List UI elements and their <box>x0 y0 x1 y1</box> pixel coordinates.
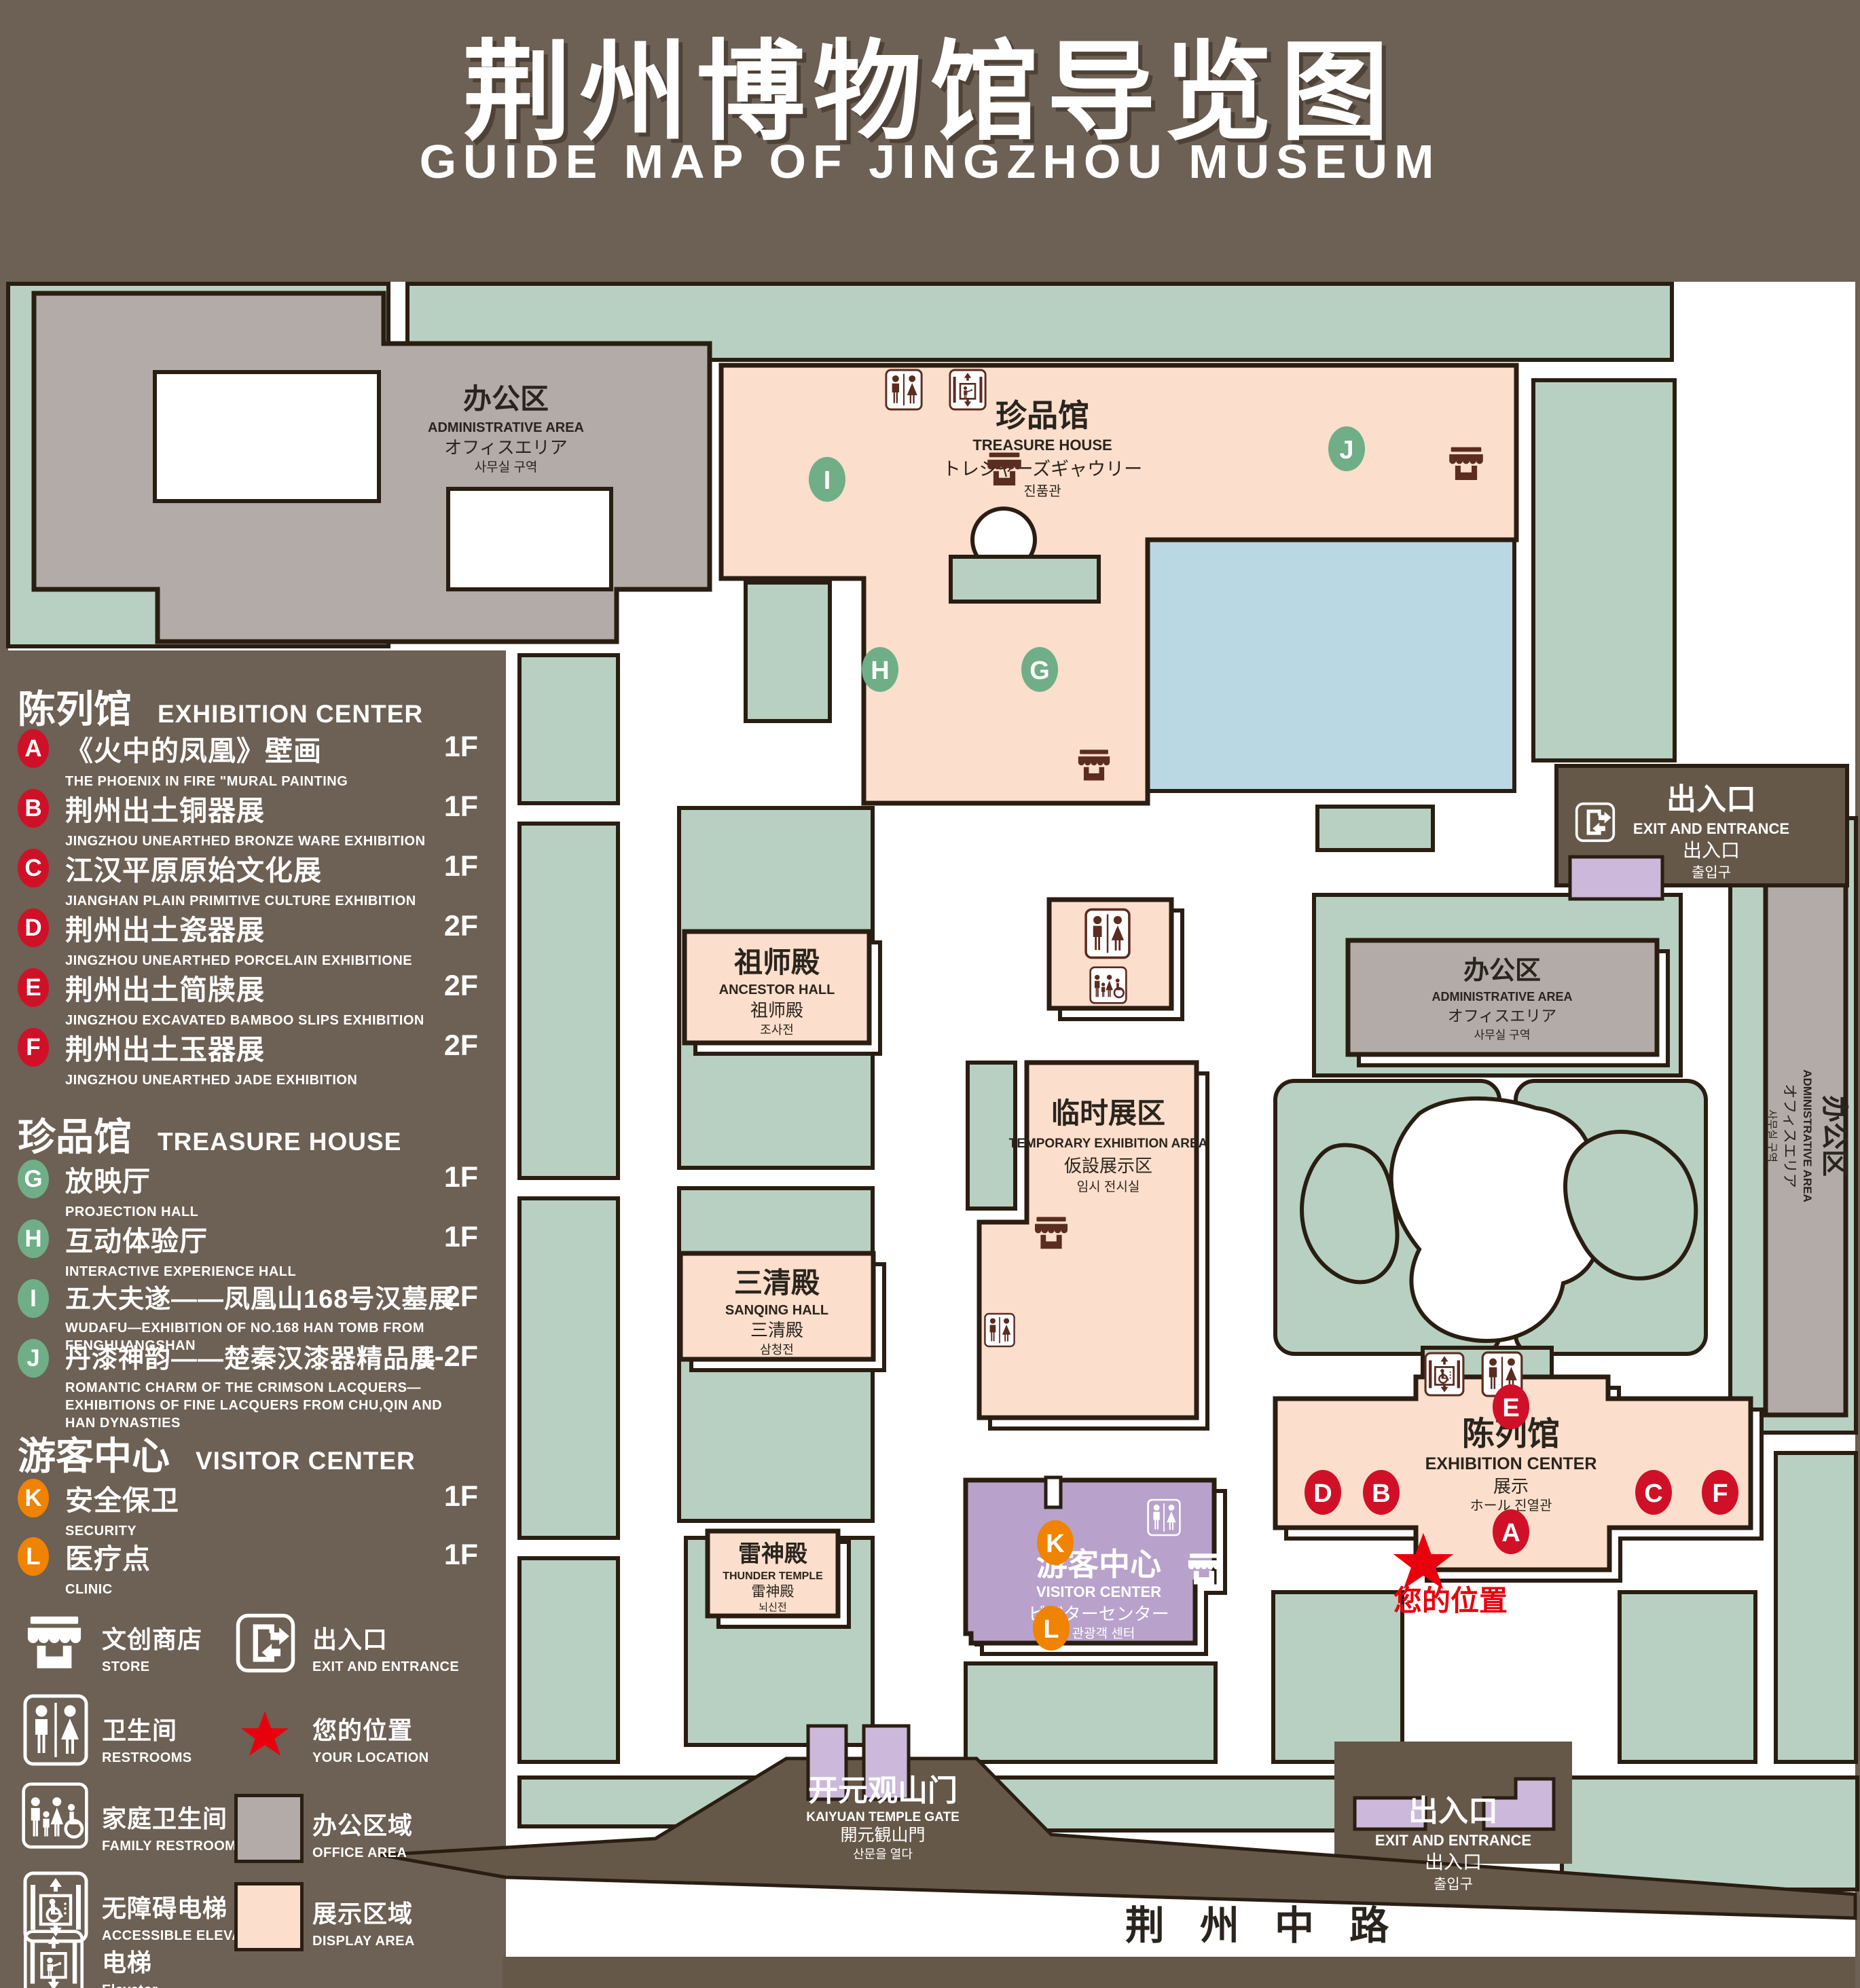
item-floor: 2F <box>444 1029 478 1063</box>
symbol-en: OFFICE AREA <box>312 1845 413 1861</box>
exit-s-en: EXIT AND ENTRANCE <box>1375 1832 1531 1849</box>
admin-nw-label-ko: 사무실 구역 <box>475 460 538 475</box>
item-zh: 五大夫遂——凤凰山168号汉墓展 <box>65 1278 493 1315</box>
item-floor: 2F <box>444 970 478 1003</box>
section-title-en: EXHIBITION CENTER <box>158 700 423 729</box>
exit-icon <box>234 1612 297 1674</box>
item-zh: 放映厅 <box>65 1158 493 1199</box>
admin-nw-label-ja: オフィスエリア <box>444 437 567 458</box>
display-area-swatch <box>234 1882 304 1951</box>
legend-item-L: L 医疗点 CLINIC 1F <box>18 1536 493 1598</box>
lawn <box>1776 1453 1856 1762</box>
legend-item-K: K 安全保卫 SECURITY 1F <box>18 1477 493 1540</box>
badge-I: I <box>18 1279 49 1318</box>
temporary-label-zh: 临时展区 <box>1051 1097 1165 1129</box>
exit-door-icon <box>1577 804 1614 841</box>
thunder-label-zh: 雷神殿 <box>738 1541 807 1567</box>
exit-s-ko: 출입구 <box>1434 1877 1473 1892</box>
item-zh: 荆州出土铜器展 <box>65 788 493 828</box>
svg-text:J: J <box>1339 436 1353 464</box>
ancestor-label-zh: 祖师殿 <box>734 946 820 978</box>
svg-text:A: A <box>1501 1519 1520 1547</box>
admin-e-label-ko: 사무실 구역 <box>1474 1029 1531 1042</box>
lawn <box>519 1198 618 1538</box>
section-title-zh: 游客中心 <box>18 1426 170 1481</box>
section-title-zh: 陈列馆 <box>18 679 132 734</box>
item-floor: 1F <box>444 1221 478 1254</box>
item-floor: 1-2F <box>418 1340 478 1374</box>
badge-J: J <box>18 1339 49 1378</box>
elevator-icon <box>950 370 985 409</box>
svg-text:G: G <box>1029 657 1050 685</box>
guide-map-poster: 办公区 ADMINISTRATIVE AREA オフィスエリア 사무실 구역 珍… <box>0 0 1860 1988</box>
admin-se-label-zh: 办公区 <box>1819 1095 1849 1177</box>
item-floor: 2F <box>444 910 478 943</box>
marker-K: K <box>1037 1520 1074 1565</box>
legend-section-visitor-center: 游客中心 VISITOR CENTER <box>18 1426 416 1481</box>
gate-label-ja: 開元観山門 <box>840 1826 925 1845</box>
lawn <box>1533 380 1675 760</box>
badge-C: C <box>18 849 49 887</box>
symbol-label-store: 文创商店 STORE <box>102 1620 202 1675</box>
marker-I: I <box>809 457 845 502</box>
item-en: CLINIC <box>65 1581 473 1598</box>
restroom-icon <box>985 1314 1014 1346</box>
exit-s-ja: 出入口 <box>1425 1852 1482 1873</box>
sanqing-label-zh: 三清殿 <box>734 1267 820 1299</box>
family-restroom-icon <box>20 1780 90 1851</box>
legend-section-exhibition-center: 陈列馆 EXHIBITION CENTER <box>18 679 423 734</box>
legend-section-treasure-house: 珍品馆 TREASURE HOUSE <box>18 1107 401 1162</box>
symbol-en: FAMILY RESTROOMS <box>102 1839 246 1854</box>
symbol-zh: 文创商店 <box>102 1620 202 1655</box>
accessible-elevator-icon <box>1425 1353 1463 1395</box>
exit-ne-ja: 出入口 <box>1683 840 1740 861</box>
badge-K: K <box>18 1479 49 1517</box>
exhibition-label-zh2: 展示 <box>1493 1476 1529 1496</box>
admin-e-label-zh: 办公区 <box>1463 957 1541 985</box>
symbol-en: Elevator <box>102 1983 158 1988</box>
exhibition-label-en: EXHIBITION CENTER <box>1425 1454 1597 1473</box>
restroom-icon <box>886 370 922 409</box>
badge-A: A <box>18 729 49 768</box>
treasure-label-en: TREASURE HOUSE <box>972 437 1112 454</box>
legend-item-F: F 荆州出土玉器展 JINGZHOU UNEARTHED JADE EXHIBI… <box>18 1027 493 1089</box>
your-location-label: 您的位置 <box>1393 1585 1508 1617</box>
exit-ne-en: EXIT AND ENTRANCE <box>1633 820 1789 837</box>
treasure-label-ja: トレジャーズギャウリー <box>943 459 1142 479</box>
pond-courtyard-lawn-top <box>951 557 1099 602</box>
family-restroom-icon <box>1091 968 1127 1004</box>
symbol-zh: 卫生间 <box>102 1711 192 1746</box>
admin-nw-courtyard <box>155 372 379 501</box>
item-zh: 荆州出土玉器展 <box>65 1027 493 1067</box>
lawn <box>746 583 830 721</box>
section-title-en: TREASURE HOUSE <box>158 1128 401 1156</box>
svg-text:D: D <box>1313 1479 1332 1508</box>
marker-L: L <box>1033 1606 1070 1651</box>
lawn <box>1317 807 1433 850</box>
symbol-en: DISPLAY AREA <box>312 1934 415 1949</box>
legend-item-H: H 互动体验厅 INTERACTIVE EXPERIENCE HALL 1F <box>18 1218 493 1281</box>
restroom-icon <box>22 1692 90 1768</box>
svg-text:H: H <box>871 657 889 685</box>
admin-nw-label-en: ADMINISTRATIVE AREA <box>428 420 584 435</box>
sanqing-label-ko: 삼청전 <box>760 1343 794 1357</box>
legend-item-D: D 荆州出土瓷器展 JINGZHOU UNEARTHED PORCELAIN E… <box>18 907 493 970</box>
legend-item-C: C 江汉平原原始文化展 JIANGHAN PLAIN PRIMITIVE CUL… <box>18 847 493 910</box>
admin-e-label-en: ADMINISTRATIVE AREA <box>1432 990 1573 1004</box>
item-zh: 医疗点 <box>65 1536 493 1577</box>
lawn <box>519 655 618 803</box>
marker-A: A <box>1493 1509 1529 1554</box>
badge-E: E <box>18 968 49 1007</box>
admin-se-label-ko: 사무실 구역 <box>1766 1109 1778 1162</box>
exit-ne-zh: 出入口 <box>1666 783 1756 816</box>
treasure-label-ko: 진품관 <box>1023 483 1061 499</box>
legend-item-A: A 《火中的凤凰》壁画 THE PHOENIX IN FIRE "MURAL P… <box>18 728 493 790</box>
symbol-zh: 出入口 <box>312 1620 459 1655</box>
badge-F: F <box>18 1028 49 1067</box>
symbol-label-your-location: 您的位置 YOUR LOCATION <box>312 1711 429 1766</box>
item-floor: 1F <box>444 731 478 764</box>
treasure-label-zh: 珍品馆 <box>996 398 1089 433</box>
svg-text:F: F <box>1712 1479 1728 1508</box>
symbol-label-office-area: 办公区域 OFFICE AREA <box>312 1806 413 1861</box>
legend-item-B: B 荆州出土铜器展 JINGZHOU UNEARTHED BRONZE WARE… <box>18 788 493 850</box>
symbol-zh: 家庭卫生间 <box>102 1799 246 1835</box>
temporary-label-ja: 仮設展示区 <box>1064 1156 1152 1176</box>
symbol-label-elevator: 电梯 Elevator <box>102 1943 158 1988</box>
visitor-notch <box>1046 1477 1061 1507</box>
item-en: JINGZHOU UNEARTHED JADE EXHIBITION <box>65 1071 473 1089</box>
symbol-en: STORE <box>102 1659 202 1675</box>
section-title-en: VISITOR CENTER <box>196 1447 416 1475</box>
item-zh: 江汉平原原始文化展 <box>65 847 493 888</box>
exit-ne-purple <box>1570 857 1662 899</box>
badge-G: G <box>18 1160 49 1198</box>
item-floor: 1F <box>444 1480 478 1513</box>
item-floor: 1F <box>444 1539 478 1572</box>
badge-H: H <box>18 1219 49 1258</box>
road-label: 荆 州 中 路 <box>1125 1904 1401 1948</box>
temporary-label-en: TEMPORARY EXHIBITION AREA <box>1009 1137 1208 1151</box>
item-en: ROMANTIC CHARM OF THE CRIMSON LACQUERS—E… <box>65 1379 473 1432</box>
lawn <box>519 1558 618 1762</box>
symbol-en: EXIT AND ENTRANCE <box>312 1659 459 1675</box>
admin-se-label-ja: オフィスエリア <box>1781 1084 1798 1188</box>
admin-e-label-ja: オフィスエリア <box>1448 1007 1557 1025</box>
temporary-label-ko: 임시 전시실 <box>1077 1179 1140 1194</box>
lawn <box>519 824 618 1178</box>
svg-text:C: C <box>1644 1479 1662 1508</box>
item-zh: 互动体验厅 <box>65 1218 493 1259</box>
visitor-label-en: VISITOR CENTER <box>1036 1583 1161 1600</box>
marker-E: E <box>1493 1384 1529 1429</box>
thunder-label-en: THUNDER TEMPLE <box>723 1570 823 1582</box>
symbol-label-restrooms: 卫生间 RESTROOMS <box>102 1711 192 1766</box>
exit-ne-ko: 출입구 <box>1692 865 1731 881</box>
section-title-zh: 珍品馆 <box>18 1107 132 1162</box>
ancestor-label-ko: 조사전 <box>760 1023 794 1037</box>
symbol-zh: 办公区域 <box>312 1806 413 1841</box>
marker-C: C <box>1635 1470 1672 1515</box>
badge-D: D <box>18 908 49 947</box>
svg-text:K: K <box>1046 1530 1065 1558</box>
elevator-icon <box>22 1928 86 1988</box>
svg-text:E: E <box>1502 1394 1519 1422</box>
ancestor-label-en: ANCESTOR HALL <box>719 982 835 997</box>
badge-B: B <box>18 789 49 828</box>
thunder-label-ko: 뇌신전 <box>759 1602 786 1613</box>
marker-B: B <box>1363 1470 1400 1515</box>
lawn <box>966 1663 1216 1762</box>
svg-text:B: B <box>1372 1479 1390 1508</box>
ancestor-label-ja: 祖师殿 <box>750 1000 803 1020</box>
symbol-label-family-restrooms: 家庭卫生间 FAMILY RESTROOMS <box>102 1799 246 1854</box>
symbol-zh: 您的位置 <box>312 1711 429 1746</box>
marker-H: H <box>862 647 898 692</box>
legend-item-E: E 荆州出土简牍展 JINGZHOU EXCAVATED BAMBOO SLIP… <box>18 967 493 1029</box>
admin-nw-label-zh: 办公区 <box>463 383 549 415</box>
marker-F: F <box>1702 1470 1738 1515</box>
lawn <box>968 1063 1015 1209</box>
item-zh: 《火中的凤凰》壁画 <box>65 728 493 769</box>
sanqing-label-en: SANQING HALL <box>725 1303 828 1318</box>
marker-D: D <box>1305 1470 1341 1515</box>
marker-G: G <box>1021 647 1058 692</box>
marker-J: J <box>1328 426 1365 471</box>
admin-se-label-en: ADMINISTRATIVE AREA <box>1801 1069 1814 1202</box>
svg-text:L: L <box>1043 1615 1059 1644</box>
gate-label-en: KAIYUAN TEMPLE GATE <box>806 1810 960 1824</box>
legend-item-J: J 丹漆神韵——楚秦汉漆器精品展 ROMANTIC CHARM OF THE C… <box>18 1338 493 1432</box>
item-zh: 荆州出土瓷器展 <box>65 907 493 948</box>
exit-s-zh: 出入口 <box>1408 1794 1498 1828</box>
symbol-en: RESTROOMS <box>102 1750 192 1766</box>
gate-label-ko: 산문을 열다 <box>853 1847 913 1861</box>
page-subtitle: GUIDE MAP OF JINGZHOU MUSEUM <box>0 134 1860 189</box>
lawn <box>1562 1778 1857 1890</box>
office-area-swatch <box>234 1794 304 1863</box>
item-floor: 2F <box>444 1281 478 1314</box>
thunder-label-ja: 雷神殿 <box>752 1584 795 1600</box>
badge-L: L <box>18 1537 49 1576</box>
item-zh: 安全保卫 <box>65 1477 493 1518</box>
your-location-star-icon <box>239 1708 291 1760</box>
south-curb <box>503 1957 1855 1988</box>
item-floor: 1F <box>444 850 478 883</box>
sanqing-label-ja: 三清殿 <box>750 1320 803 1340</box>
restroom-icon <box>1148 1500 1180 1535</box>
symbol-en: YOUR LOCATION <box>312 1750 429 1766</box>
item-zh: 荆州出土简牍展 <box>65 967 493 1008</box>
symbol-label-display-area: 展示区域 DISPLAY AREA <box>312 1894 415 1949</box>
store-icon <box>20 1615 88 1673</box>
lawn <box>1620 1592 1755 1762</box>
symbol-label-exit: 出入口 EXIT AND ENTRANCE <box>312 1620 459 1675</box>
admin-nw-courtyard2 <box>448 489 611 589</box>
item-floor: 1F <box>444 1161 478 1194</box>
visitor-label-ko: 관광객 센터 <box>1072 1626 1135 1641</box>
restroom-icon <box>1086 910 1129 958</box>
item-floor: 1F <box>444 790 478 824</box>
svg-text:I: I <box>824 466 831 495</box>
lawn <box>1273 1592 1402 1762</box>
symbol-zh: 电梯 <box>102 1943 158 1978</box>
symbol-zh: 展示区域 <box>312 1894 415 1930</box>
gate-label-zh: 开元观山门 <box>808 1774 958 1807</box>
legend-item-G: G 放映厅 PROJECTION HALL 1F <box>18 1158 493 1221</box>
